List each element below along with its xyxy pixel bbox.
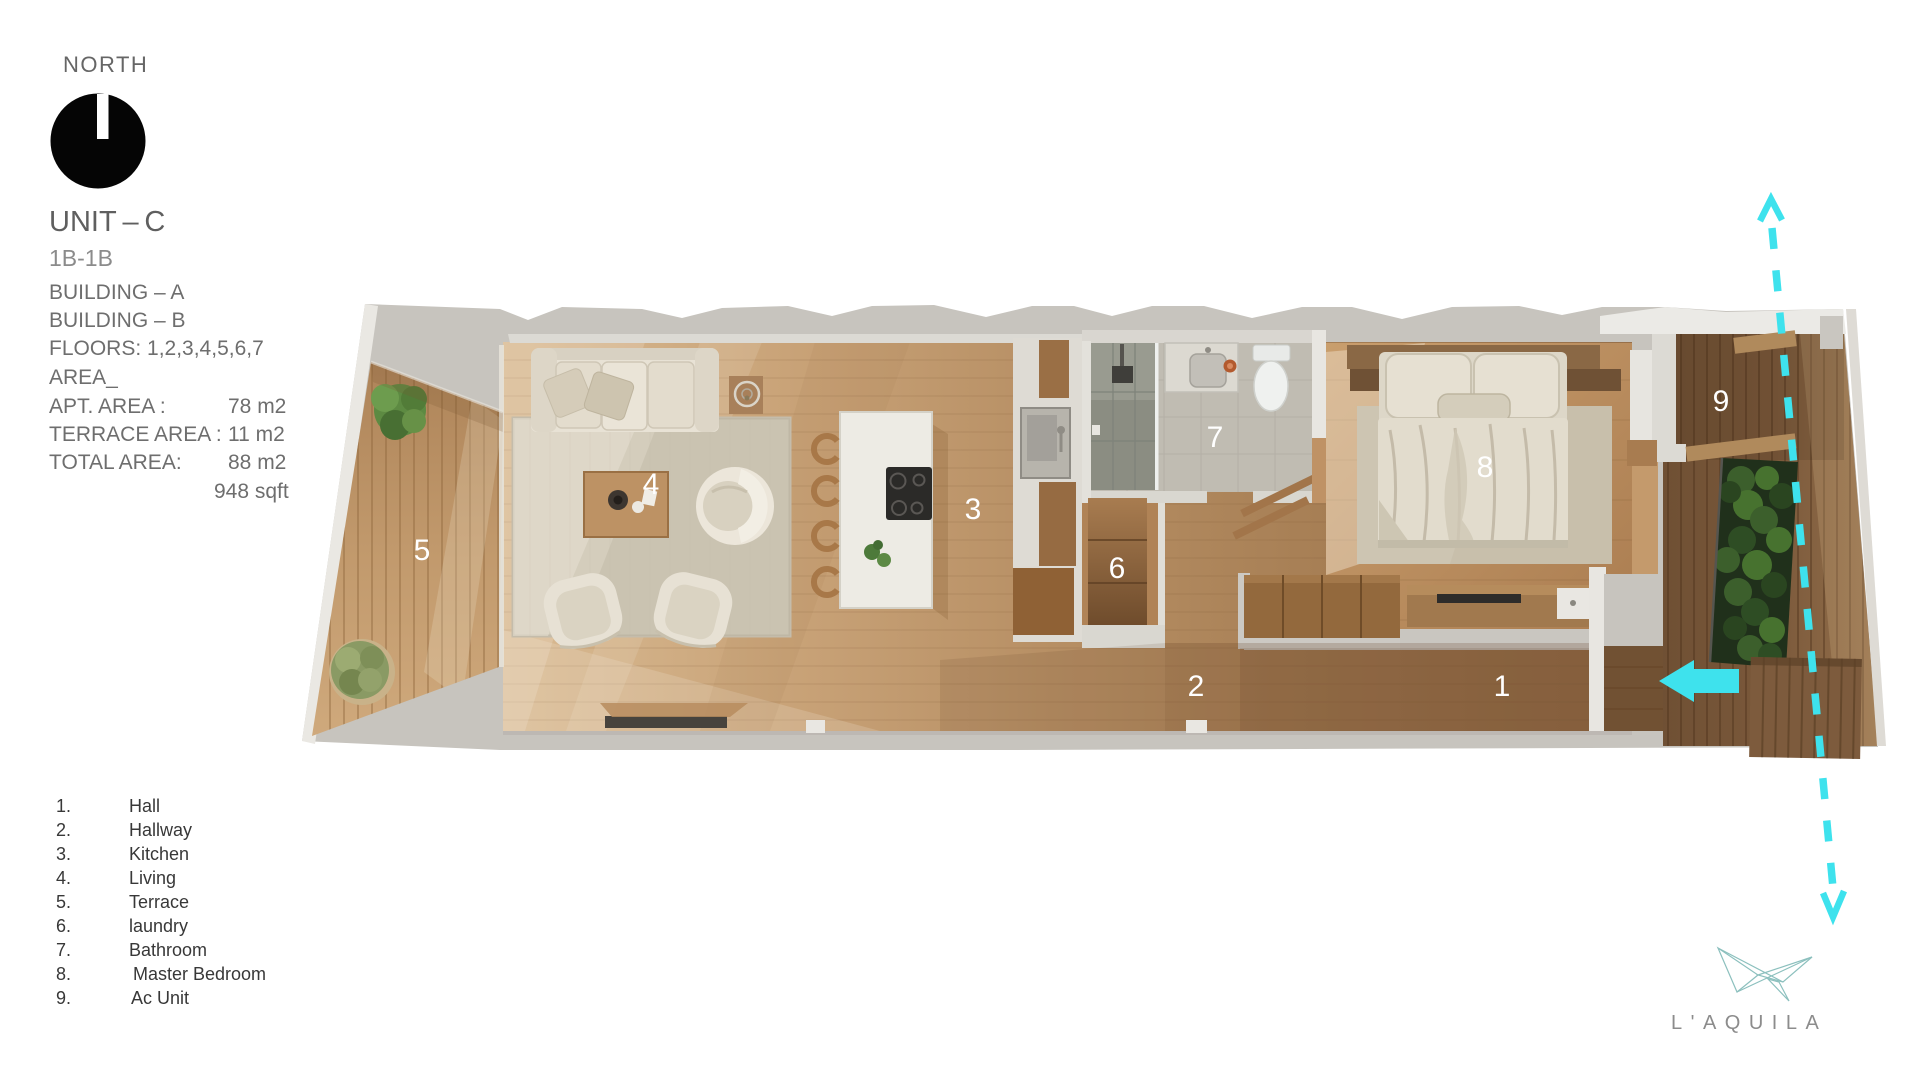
svg-text:7: 7	[1207, 421, 1224, 454]
svg-text:6: 6	[1109, 552, 1126, 585]
svg-text:3: 3	[965, 493, 982, 526]
svg-text:9: 9	[1713, 385, 1730, 418]
svg-text:4: 4	[643, 468, 660, 501]
svg-text:2: 2	[1188, 670, 1205, 703]
svg-text:8: 8	[1477, 451, 1494, 484]
svg-text:1: 1	[1494, 670, 1511, 703]
svg-text:5: 5	[414, 534, 431, 567]
